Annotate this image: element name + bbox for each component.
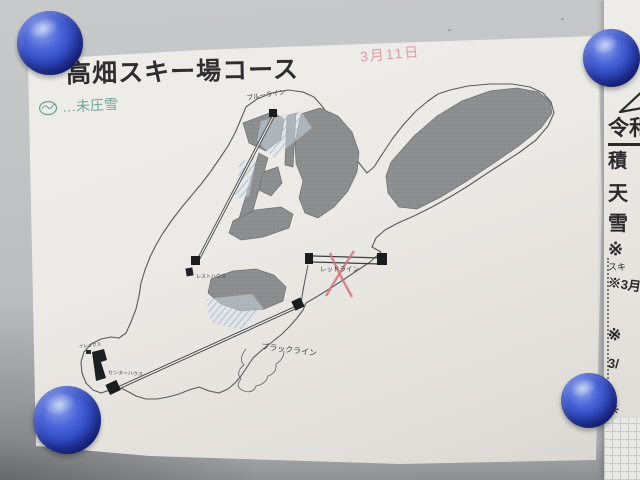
lift-station — [191, 256, 200, 265]
magnet-top-left — [17, 11, 83, 75]
lift-station — [269, 109, 277, 117]
side-note-mark: ※ — [607, 324, 622, 345]
side-note-heading: 令和 — [608, 112, 640, 146]
closed-cross-mark — [326, 251, 354, 296]
rest-house-icon — [185, 267, 193, 276]
side-note-march: ※3月 — [607, 272, 640, 295]
side-note-date-fragment: 3/ — [607, 356, 619, 372]
slope-patch — [386, 88, 552, 209]
side-note-mark: ※ — [608, 239, 623, 260]
magnet-bottom-right — [561, 373, 617, 428]
blue-line-label: ブルーライン — [246, 87, 286, 102]
lift-station — [105, 380, 121, 395]
slope-patch — [229, 207, 293, 240]
rest-house-label: レストハウス — [196, 273, 226, 280]
center-house-label: センターハウス — [108, 369, 143, 378]
red-line-label: レッドライン — [320, 265, 359, 273]
black-line-label: ブラックライン — [261, 341, 318, 358]
photo-of-ski-map-poster: 高畑スキー場コース 3月11日 …未圧雪 — [0, 0, 640, 480]
magnet-bottom-left — [33, 386, 101, 454]
small-hut-label: イレックス — [79, 342, 102, 350]
center-house-icon — [92, 349, 107, 381]
wall-speck — [561, 18, 564, 20]
side-note-row: 天 — [608, 177, 628, 206]
grid-paper — [604, 418, 640, 480]
wall-speck — [448, 29, 451, 31]
side-note-row: 雪 — [608, 207, 628, 236]
red-line-lift — [313, 256, 382, 258]
lift-connector — [301, 265, 308, 304]
small-hut-icon — [86, 350, 91, 354]
magnet-top-right — [583, 29, 640, 87]
lift-station — [377, 253, 387, 265]
lift-station — [305, 253, 313, 264]
side-note-row: 積 — [608, 146, 627, 173]
